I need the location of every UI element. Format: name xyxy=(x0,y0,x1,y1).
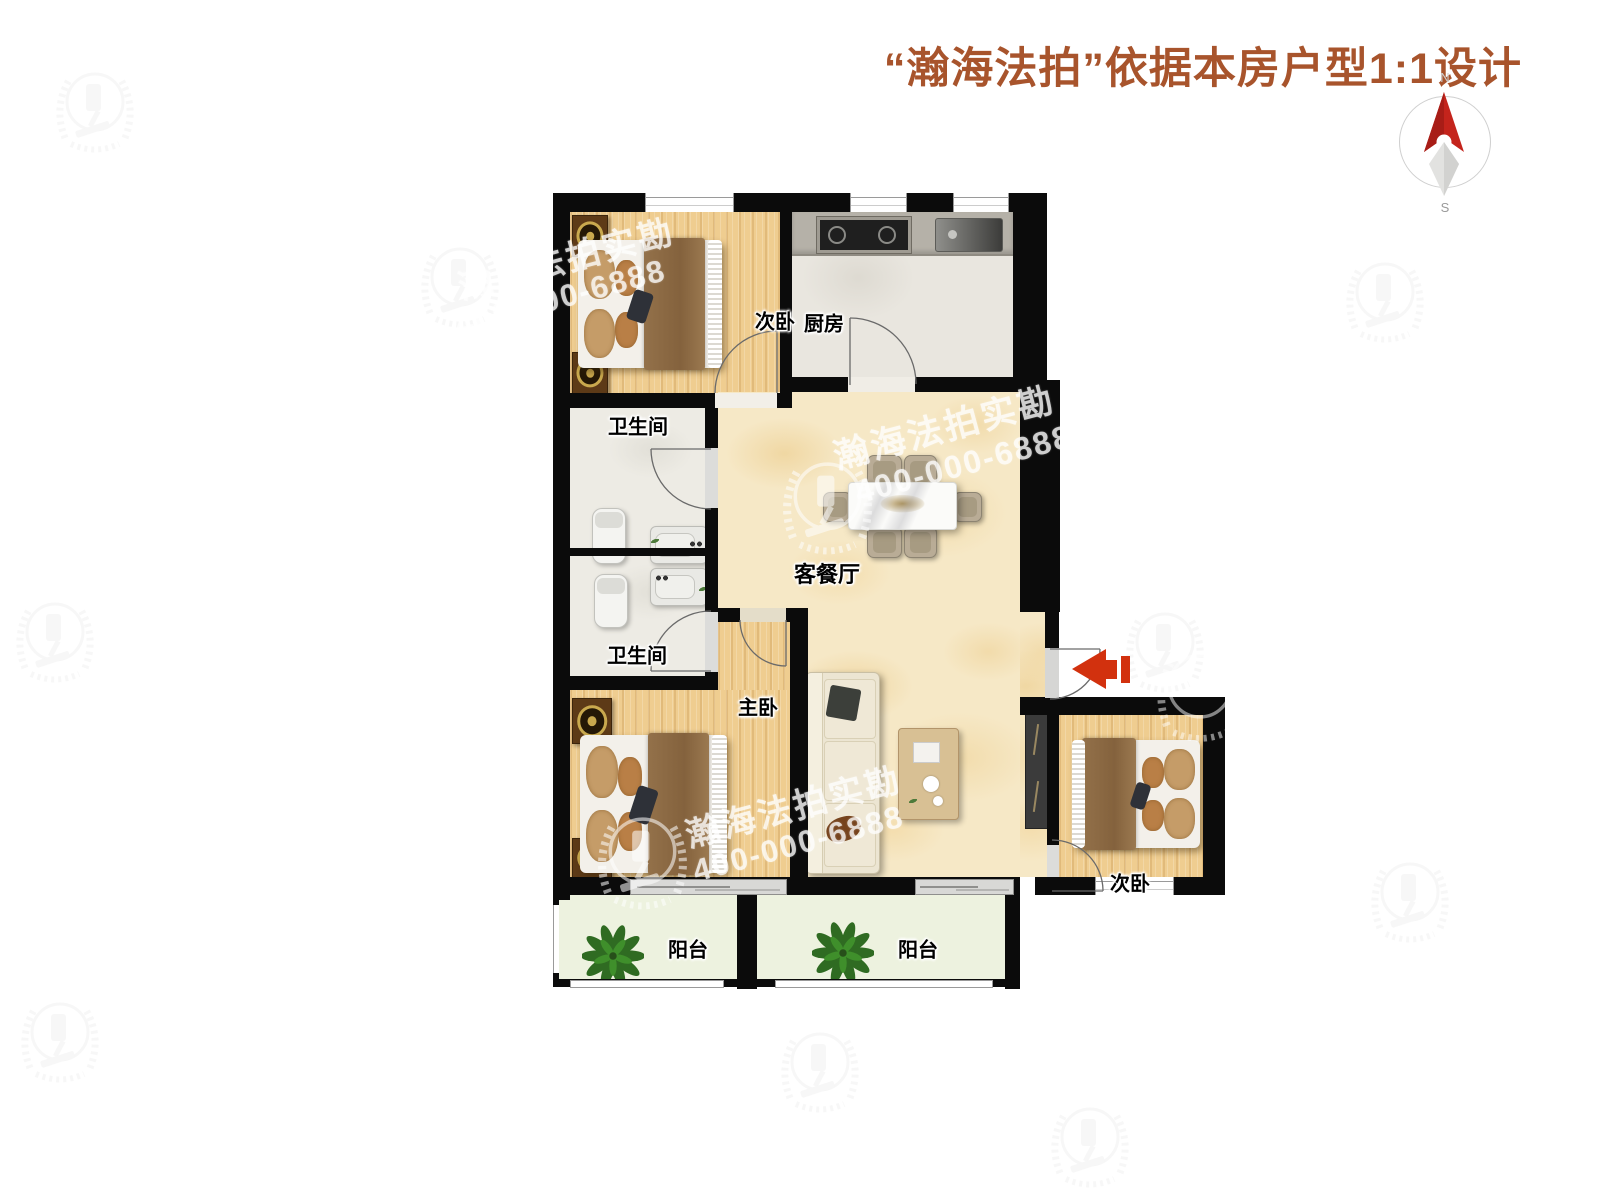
dining-chair xyxy=(904,526,937,558)
wall xyxy=(553,676,718,690)
background-watermark-logo-icon xyxy=(10,990,110,1090)
background-watermark-logo-icon xyxy=(1040,1095,1140,1195)
room-label-balcony-right: 阳台 xyxy=(898,934,938,963)
dining-table xyxy=(848,482,957,530)
wall xyxy=(553,193,570,900)
window xyxy=(953,193,1009,212)
wall xyxy=(705,508,718,612)
sink-icon xyxy=(935,218,1003,252)
wall xyxy=(777,393,792,408)
compass-north-label: N xyxy=(1440,70,1449,85)
wall xyxy=(553,393,718,408)
wall xyxy=(1047,715,1059,845)
compass: N S xyxy=(1390,70,1500,215)
window xyxy=(645,193,734,212)
wall xyxy=(1020,380,1060,612)
room-label-living: 客餐厅 xyxy=(794,557,860,589)
sliding-door xyxy=(915,879,1014,895)
bed xyxy=(578,240,722,368)
sliding-door xyxy=(630,879,787,895)
window xyxy=(570,980,724,988)
wall xyxy=(553,548,718,556)
door-opening xyxy=(740,608,786,622)
window xyxy=(775,980,993,988)
room-label-bath-upper: 卫生间 xyxy=(608,411,668,440)
door-opening xyxy=(1047,845,1059,877)
dining-chair xyxy=(867,526,902,558)
wall xyxy=(718,608,740,622)
entry-arrow-icon xyxy=(1072,649,1130,689)
wall xyxy=(1005,895,1020,989)
window xyxy=(850,193,907,212)
room-label-balcony-left: 阳台 xyxy=(668,934,708,963)
room-label-bedroom-top: 次卧 xyxy=(755,306,795,335)
door-opening xyxy=(715,393,777,408)
bed xyxy=(580,735,727,873)
wall xyxy=(1045,612,1059,648)
background-watermark-logo-icon xyxy=(1360,850,1460,950)
room-label-bedroom-right: 次卧 xyxy=(1110,868,1150,897)
room-label-master: 主卧 xyxy=(738,692,778,721)
bed xyxy=(1072,740,1200,848)
toilet-icon xyxy=(594,574,628,628)
background-watermark-logo-icon xyxy=(410,235,510,335)
entry-door-opening xyxy=(1045,648,1059,698)
master-corridor-floor xyxy=(718,622,790,690)
dining-chair xyxy=(953,492,982,522)
coffee-table xyxy=(898,728,959,820)
background-watermark-logo-icon xyxy=(1335,250,1435,350)
wall xyxy=(1203,697,1225,895)
room-label-kitchen: 厨房 xyxy=(804,308,844,337)
wall xyxy=(792,377,1047,392)
background-watermark-logo-icon xyxy=(5,590,105,690)
wall xyxy=(790,608,808,877)
background-watermark-logo-icon xyxy=(770,1020,870,1120)
door-opening xyxy=(705,612,718,672)
wall xyxy=(1020,697,1225,715)
door-opening xyxy=(848,377,915,392)
background-watermark-logo-icon xyxy=(45,60,145,160)
wall xyxy=(1013,193,1047,392)
sofa xyxy=(805,672,880,874)
room-label-bath-lower: 卫生间 xyxy=(607,640,667,669)
door-opening xyxy=(705,448,718,508)
tv-cabinet xyxy=(1025,709,1048,829)
compass-needle-icon xyxy=(1418,88,1470,200)
bathtub-icon xyxy=(650,568,708,606)
floorplan-page: “瀚海法拍”依据本房户型1:1设计 N S xyxy=(0,0,1600,1200)
stove-icon xyxy=(816,216,912,254)
lamp-icon xyxy=(577,705,607,737)
bathtub-icon xyxy=(650,526,708,564)
compass-south-label: S xyxy=(1441,200,1450,215)
balcony-right-floor xyxy=(757,895,1005,979)
window xyxy=(553,905,559,973)
floorplan: 次卧 厨房 卫生间 卫生间 客餐厅 主卧 次卧 阳台 阳台 xyxy=(548,188,1228,1003)
